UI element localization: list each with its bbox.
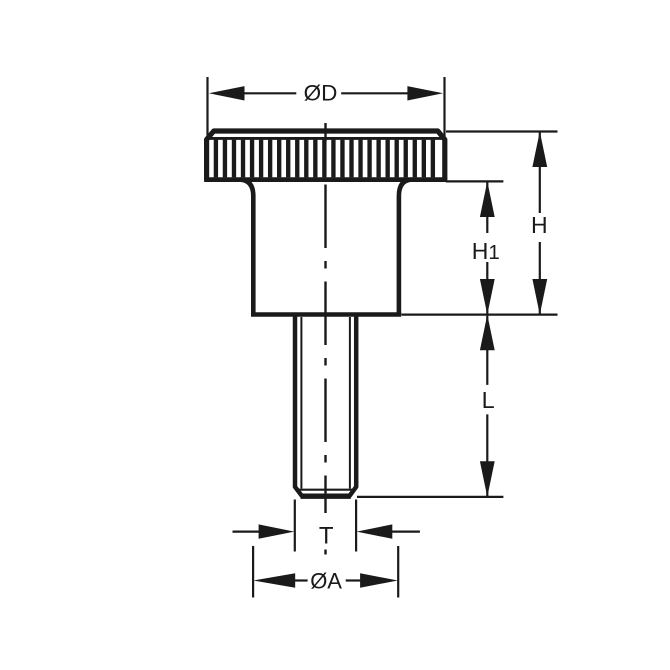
svg-text:ØD: ØD [304, 81, 338, 106]
svg-text:H: H [531, 212, 548, 238]
svg-text:L: L [482, 387, 495, 413]
svg-text:T: T [319, 523, 334, 550]
svg-text:ØA: ØA [310, 569, 342, 594]
svg-text:H1: H1 [472, 238, 500, 264]
